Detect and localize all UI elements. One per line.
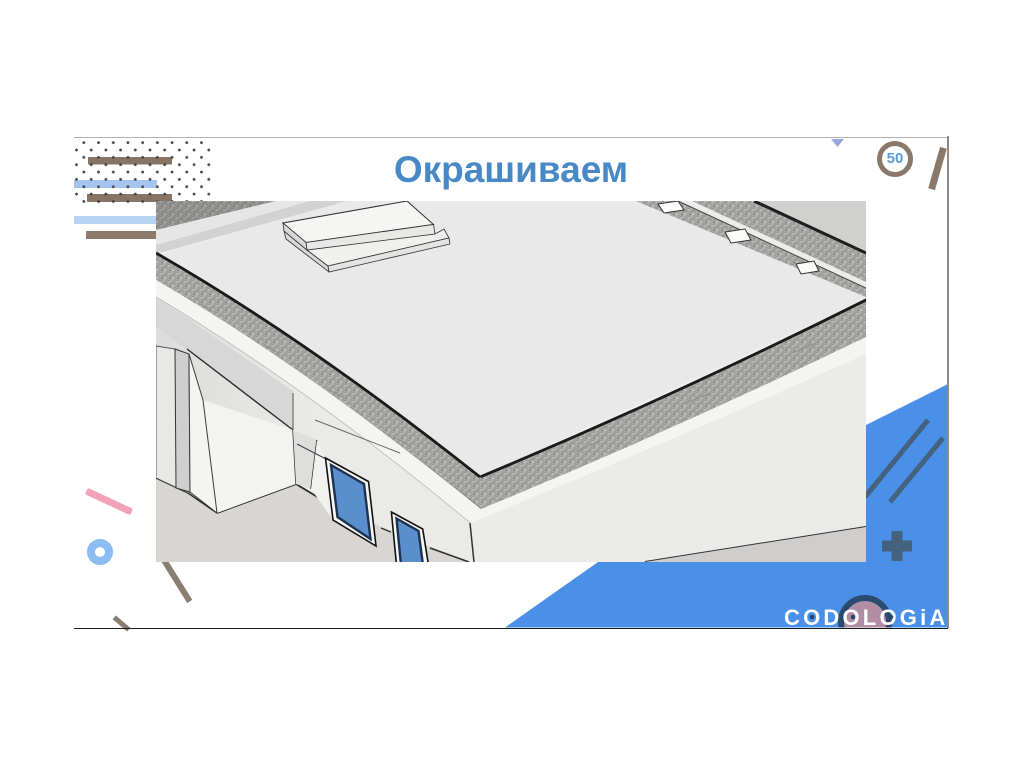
svg-text:CODOLOGiA: CODOLOGiA — [784, 605, 948, 630]
